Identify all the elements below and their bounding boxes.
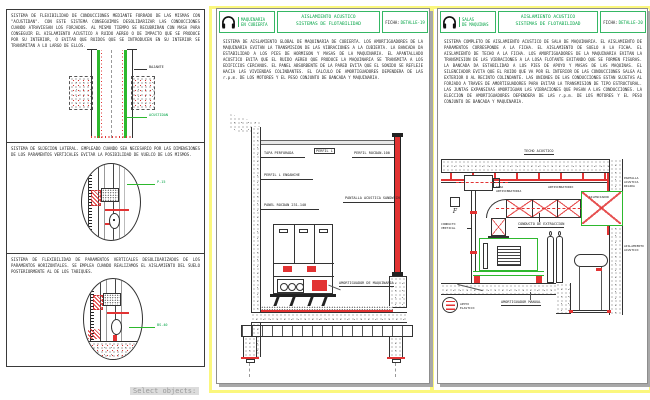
silencer-box: SILENCIADOR	[581, 191, 623, 226]
label-antivib: ANTIVIBRATORIO	[548, 186, 578, 190]
pipe-coupling	[470, 251, 477, 254]
corner-hatch	[88, 329, 100, 339]
label-silenciador: SILENCIADOR	[589, 196, 609, 200]
fixing-bar	[105, 209, 129, 211]
logo-caption-line2: DE MAQUINAS	[462, 22, 489, 27]
anchor-panel	[103, 293, 121, 306]
door-vent	[299, 229, 308, 233]
layer-line	[113, 164, 114, 241]
title-block: MAQUINARIA EN CUBIERTA AISLAMIENTO ACUST…	[219, 11, 428, 33]
machine-unit	[479, 238, 538, 271]
elastic-block-hatch	[93, 295, 103, 310]
support-column	[389, 337, 403, 358]
machine-louver	[497, 246, 521, 266]
door-divider	[294, 225, 295, 263]
logo-caption-line2: EN CUBIERTA	[241, 22, 268, 27]
duct-centerline	[496, 208, 591, 209]
leader-line	[134, 69, 147, 70]
vibration-mount	[273, 297, 279, 306]
title-block: SALAS DE MAQUINAS AISLAMIENTO ACUSTICO S…	[440, 11, 646, 33]
lower-slab-line	[571, 310, 611, 313]
acustidan-wrap-left	[97, 50, 100, 138]
elastic-block-hatch	[91, 190, 101, 206]
label-pantalla: PANTALLA ACUSTICA SANDWICH	[345, 196, 400, 200]
ficha-label: FICHA:	[385, 20, 399, 25]
tank	[574, 254, 608, 267]
cad-workspace: SISTEMA DE FLEXIBILIDAD DE CONDUCCIONES …	[0, 0, 650, 400]
ficha-value: DETALLE-19	[401, 20, 425, 25]
pipe-centerline	[111, 50, 112, 138]
label-amortiguador-manual: AMORTIGUADOR MANUAL	[501, 300, 541, 306]
detail-bubble	[442, 297, 458, 313]
section-text: SISTEMA DE SUJECION LATERAL. EMPLEADO CU…	[11, 146, 200, 158]
label-pantalla-rigida: PANTALLA ACUSTICA RIGIDA	[624, 177, 648, 189]
screen-cap-top	[392, 133, 403, 137]
anchor-ellipse	[109, 213, 120, 229]
logo-box: SALAS DE MAQUINAS	[440, 11, 496, 33]
ceiling-slab	[441, 159, 611, 173]
column-centerline	[395, 363, 396, 377]
flow-symbol-letter: F	[453, 208, 457, 215]
ficha-box: FICHA: DETALLE-19	[382, 11, 428, 33]
pipe-bottom-stitch	[91, 136, 133, 138]
label-acustidan: ACUSTIDAN	[149, 113, 168, 117]
headphones-icon	[221, 15, 236, 30]
leader-line	[530, 292, 531, 300]
compressor-cylinder	[288, 283, 296, 291]
detail-section-flexibilidad: SISTEMA DE FLEXIBILIDAD DE PARAMENTOS VE…	[7, 254, 204, 367]
layer-line	[104, 164, 105, 241]
label-tira: TIRA ANTIVIBRATORIA	[496, 186, 530, 194]
leader-line	[126, 117, 147, 118]
machine-panel	[483, 243, 488, 269]
label-techo: TECHO ACUSTICO	[524, 149, 554, 155]
ficha-value: DETALLE-20	[619, 20, 643, 25]
base-plate	[392, 359, 401, 363]
machinery-unit	[273, 224, 333, 294]
fan-unit	[464, 175, 493, 191]
leader-line	[127, 184, 155, 185]
bancada-frame	[473, 271, 544, 276]
leader-line	[261, 179, 313, 180]
detail-bubble	[81, 163, 141, 241]
anchor-panel	[101, 188, 119, 202]
detail-section-sujecion: SISTEMA DE SUJECION LATERAL. EMPLEADO CU…	[7, 143, 204, 254]
sheet-description: SISTEMA DE AISLAMIENTO GLOBAL DE MAQUINA…	[223, 39, 423, 81]
door-vent	[319, 229, 328, 233]
leader-line	[467, 228, 471, 229]
motor-block	[307, 266, 316, 272]
roof-beam	[261, 140, 395, 145]
slab-joint	[607, 310, 611, 313]
sheet-description: SISTEMA COMPLETO DE AISLAMIENTO ACUSTICO…	[444, 39, 642, 105]
support-column	[243, 337, 257, 358]
logo-box: MAQUINARIA EN CUBIERTA	[219, 11, 275, 33]
leader-line	[352, 157, 394, 158]
red-stitch-left	[101, 50, 102, 138]
vibration-mount	[536, 276, 542, 283]
acoustic-screen-panel	[394, 137, 401, 272]
detail-section-bajante: SISTEMA DE FLEXIBILIDAD DE CONDUCCIONES …	[7, 10, 204, 143]
pipe-line	[475, 191, 476, 283]
vertical-duct	[491, 218, 506, 236]
compressor-cylinder	[296, 283, 304, 291]
shelf-line	[274, 263, 334, 264]
ficha-label: FICHA:	[603, 20, 617, 25]
fixing-bar	[107, 312, 129, 314]
gas-bottle	[547, 236, 554, 283]
compressor-box	[277, 279, 304, 293]
sheet-title-line1: AISLAMIENTO ACUSTICO	[499, 15, 597, 20]
headphones-icon	[442, 15, 457, 30]
label-amortiguador: AMORTIGUADOR DE MAQUINARIA	[339, 281, 394, 287]
sheet-title-line1: AISLAMIENTO ACUSTICO	[278, 15, 379, 20]
joist-deck	[241, 325, 413, 337]
elastic-pad-hatch	[446, 301, 455, 310]
motor-block	[283, 266, 292, 272]
slab-hatch-right	[131, 76, 155, 110]
pipe-cap-tick	[87, 49, 97, 50]
sheet-detalle-20[interactable]: SALAS DE MAQUINAS AISLAMIENTO ACUSTICO S…	[437, 8, 648, 384]
label-aislamiento: AISLAMIENTO ACUSTICO	[624, 245, 648, 253]
section-text: SISTEMA DE FLEXIBILIDAD DE PARAMENTOS VE…	[11, 257, 200, 275]
concrete-wall-right	[609, 159, 623, 315]
pipe-wall-left	[91, 50, 92, 138]
leader-line	[261, 157, 305, 158]
base-plate	[246, 359, 255, 363]
label-panel-rocdan: PANEL ROCDAN 231-140	[264, 203, 306, 207]
frame-line	[274, 276, 334, 277]
label-conducto-vertical: CONDUCTO VERTICAL	[441, 223, 467, 231]
compressor-cylinder	[280, 283, 288, 291]
sheet-title: AISLAMIENTO ACUSTICO SISTEMAS DE FLOTABI…	[498, 11, 598, 33]
column-centerline	[249, 363, 250, 377]
bottle-valve	[558, 231, 561, 236]
concrete-slab	[251, 312, 407, 323]
door-divider	[314, 225, 315, 263]
gas-bottle	[556, 236, 563, 283]
ficha-box: FICHA: DETALLE-20	[600, 11, 646, 33]
pipe-wall-right	[132, 50, 133, 138]
layer-line	[119, 164, 120, 241]
bottle-valve	[549, 231, 552, 236]
anchor-ellipse	[111, 319, 122, 335]
command-prompt[interactable]: Select objects:	[130, 387, 199, 395]
vibration-mount	[289, 297, 295, 306]
flow-symbol: F	[450, 197, 460, 207]
acustidan-wrap-right	[124, 50, 127, 138]
leader-line	[343, 202, 394, 203]
tank-leg	[579, 267, 580, 310]
tank-leg	[601, 267, 602, 310]
label-detail-ref: P-15	[157, 180, 165, 184]
leader-line	[261, 209, 319, 210]
label-perfil-l: PERFIL L	[314, 148, 335, 154]
detail-bubble	[83, 278, 143, 360]
red-stitch-right	[122, 50, 123, 138]
section-text: SISTEMA DE FLEXIBILIDAD DE CONDUCCIONES …	[11, 13, 200, 49]
sheet-title: AISLAMIENTO ACUSTICO SISTEMAS DE FLOTABI…	[277, 11, 380, 33]
floor-slab	[84, 341, 143, 360]
sheet-title-line2: SISTEMAS DE FLOTABILIDAD	[499, 22, 597, 27]
label-perfil-rocdan: PERFIL ROCDAN-100	[354, 151, 390, 155]
layer-line	[124, 164, 125, 241]
leader-line	[539, 213, 540, 222]
label-enganche: PERFIL L ENGANCHE	[264, 173, 300, 177]
fan-centerline	[456, 182, 508, 183]
vibration-mount	[321, 297, 327, 306]
door-vent	[279, 229, 288, 233]
sheet-title-line2: SISTEMAS DE FLOTABILIDAD	[278, 22, 379, 27]
duct-elbow	[486, 199, 506, 218]
sheet-left-details[interactable]: SISTEMA DE FLEXIBILIDAD DE CONDUCCIONES …	[6, 9, 205, 367]
label-apoyo: APOYO ELASTICO	[460, 303, 482, 311]
label-conducto: CONDUCTO DE EXTRACCION	[518, 222, 564, 228]
vibration-mount	[307, 297, 313, 306]
pipe-cap-tick	[127, 49, 137, 50]
label-bajante: BAJANTE	[149, 65, 164, 69]
slab-hatch-left	[69, 76, 93, 110]
pump-block	[312, 280, 327, 291]
pipe-coupling	[470, 211, 477, 214]
fan-flange	[493, 178, 500, 188]
sheet-detalle-19[interactable]: MAQUINARIA EN CUBIERTA AISLAMIENTO ACUST…	[216, 8, 430, 384]
slab-joint	[569, 310, 573, 313]
pipe-line	[471, 191, 472, 283]
label-tapa: TAPA PERFORADA	[264, 151, 294, 155]
anchor-dot	[113, 219, 115, 221]
label-detail-ref: BS-40	[157, 323, 168, 327]
tank-isolator	[596, 268, 602, 271]
leader-line	[129, 327, 155, 328]
vibration-mount	[474, 276, 480, 283]
